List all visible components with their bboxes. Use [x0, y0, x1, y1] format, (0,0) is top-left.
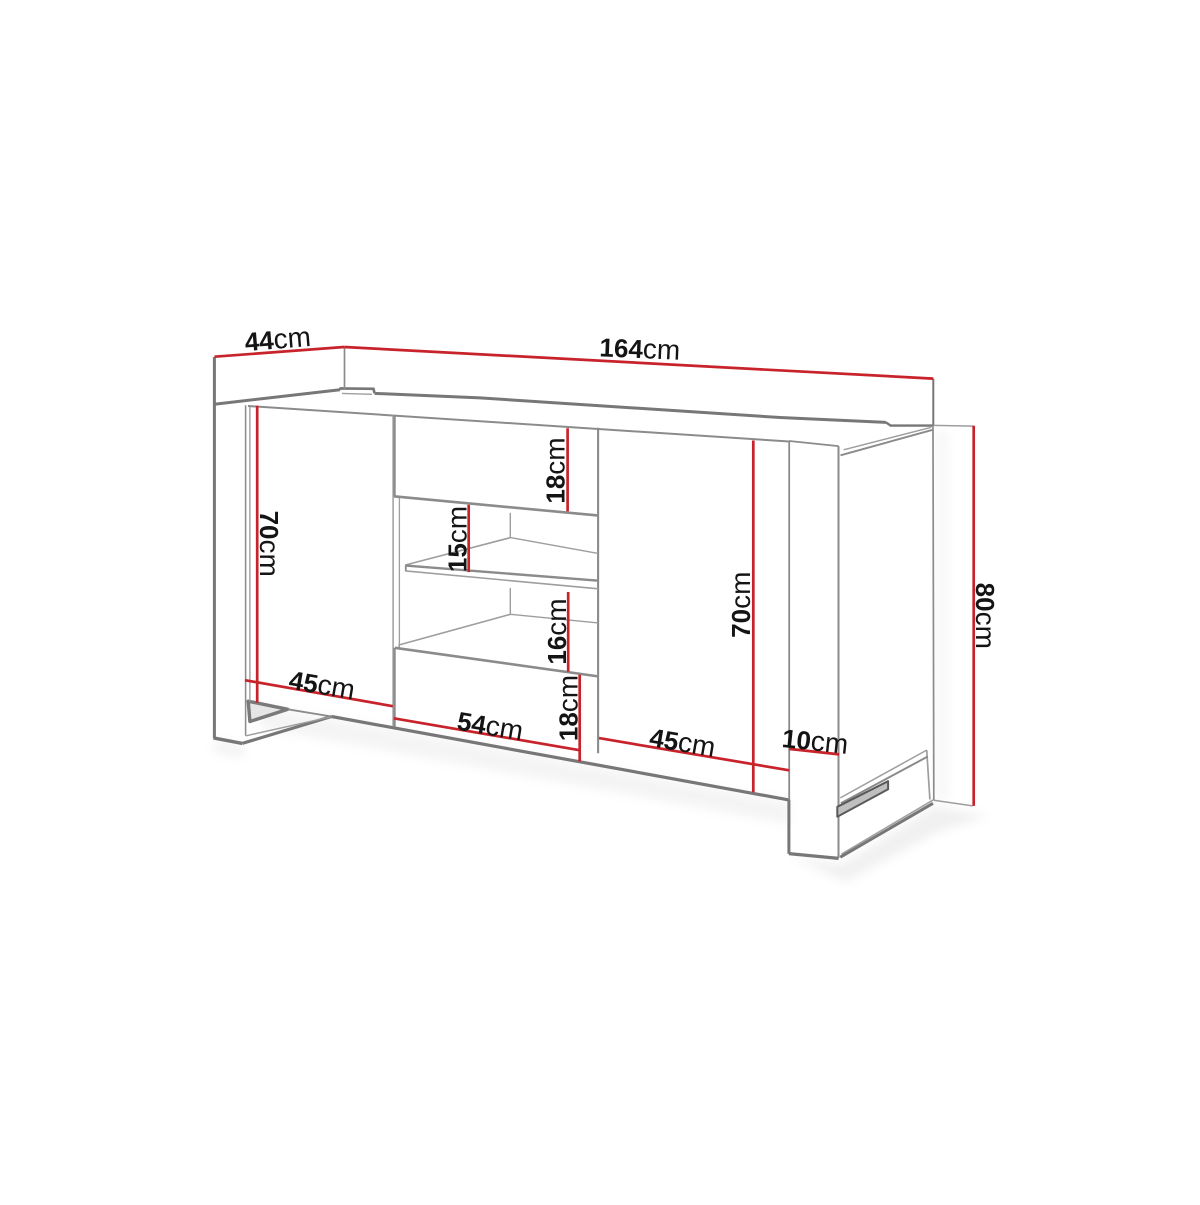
svg-text:16cm: 16cm	[541, 598, 572, 664]
svg-text:70cm: 70cm	[725, 572, 756, 638]
svg-text:70cm: 70cm	[254, 511, 285, 577]
svg-text:44cm: 44cm	[244, 321, 312, 357]
svg-text:164cm: 164cm	[599, 331, 681, 365]
svg-text:15cm: 15cm	[442, 506, 473, 572]
svg-text:80cm: 80cm	[970, 583, 1001, 649]
svg-text:18cm: 18cm	[539, 437, 570, 503]
svg-text:18cm: 18cm	[553, 675, 584, 741]
